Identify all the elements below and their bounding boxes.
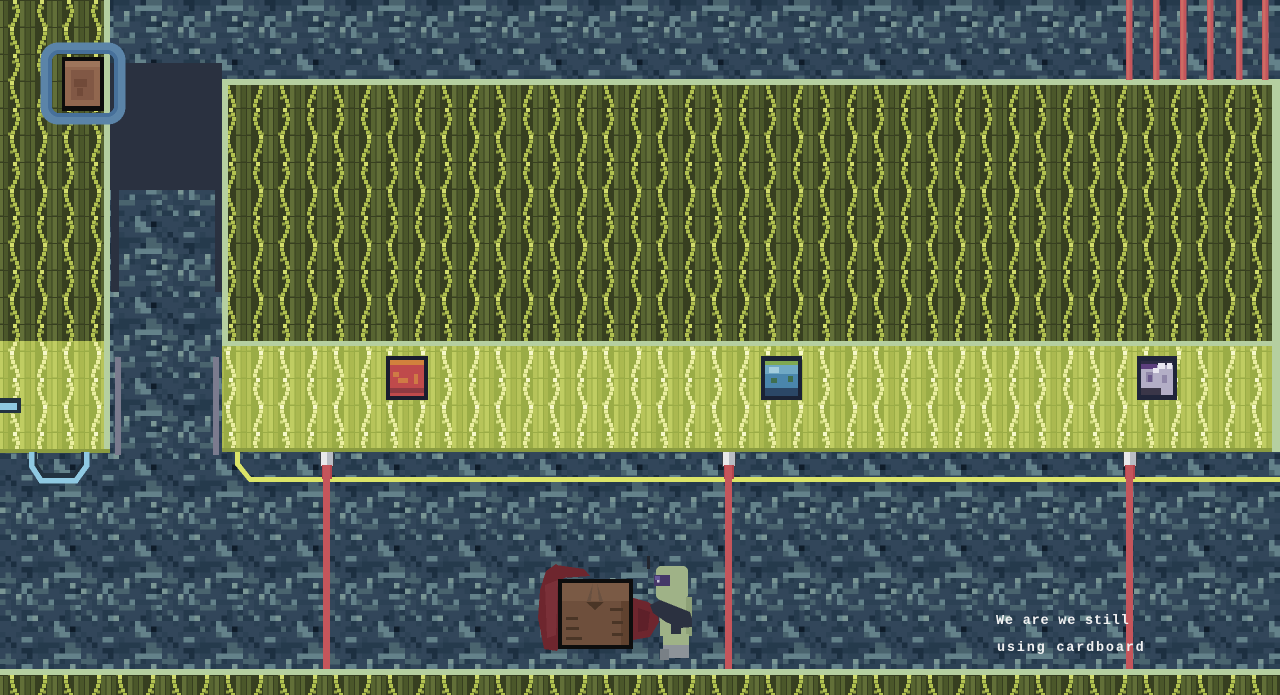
svg-text:using cardboard: using cardboard — [997, 641, 1146, 656]
svg-text:We are we still: We are we still — [996, 614, 1130, 629]
